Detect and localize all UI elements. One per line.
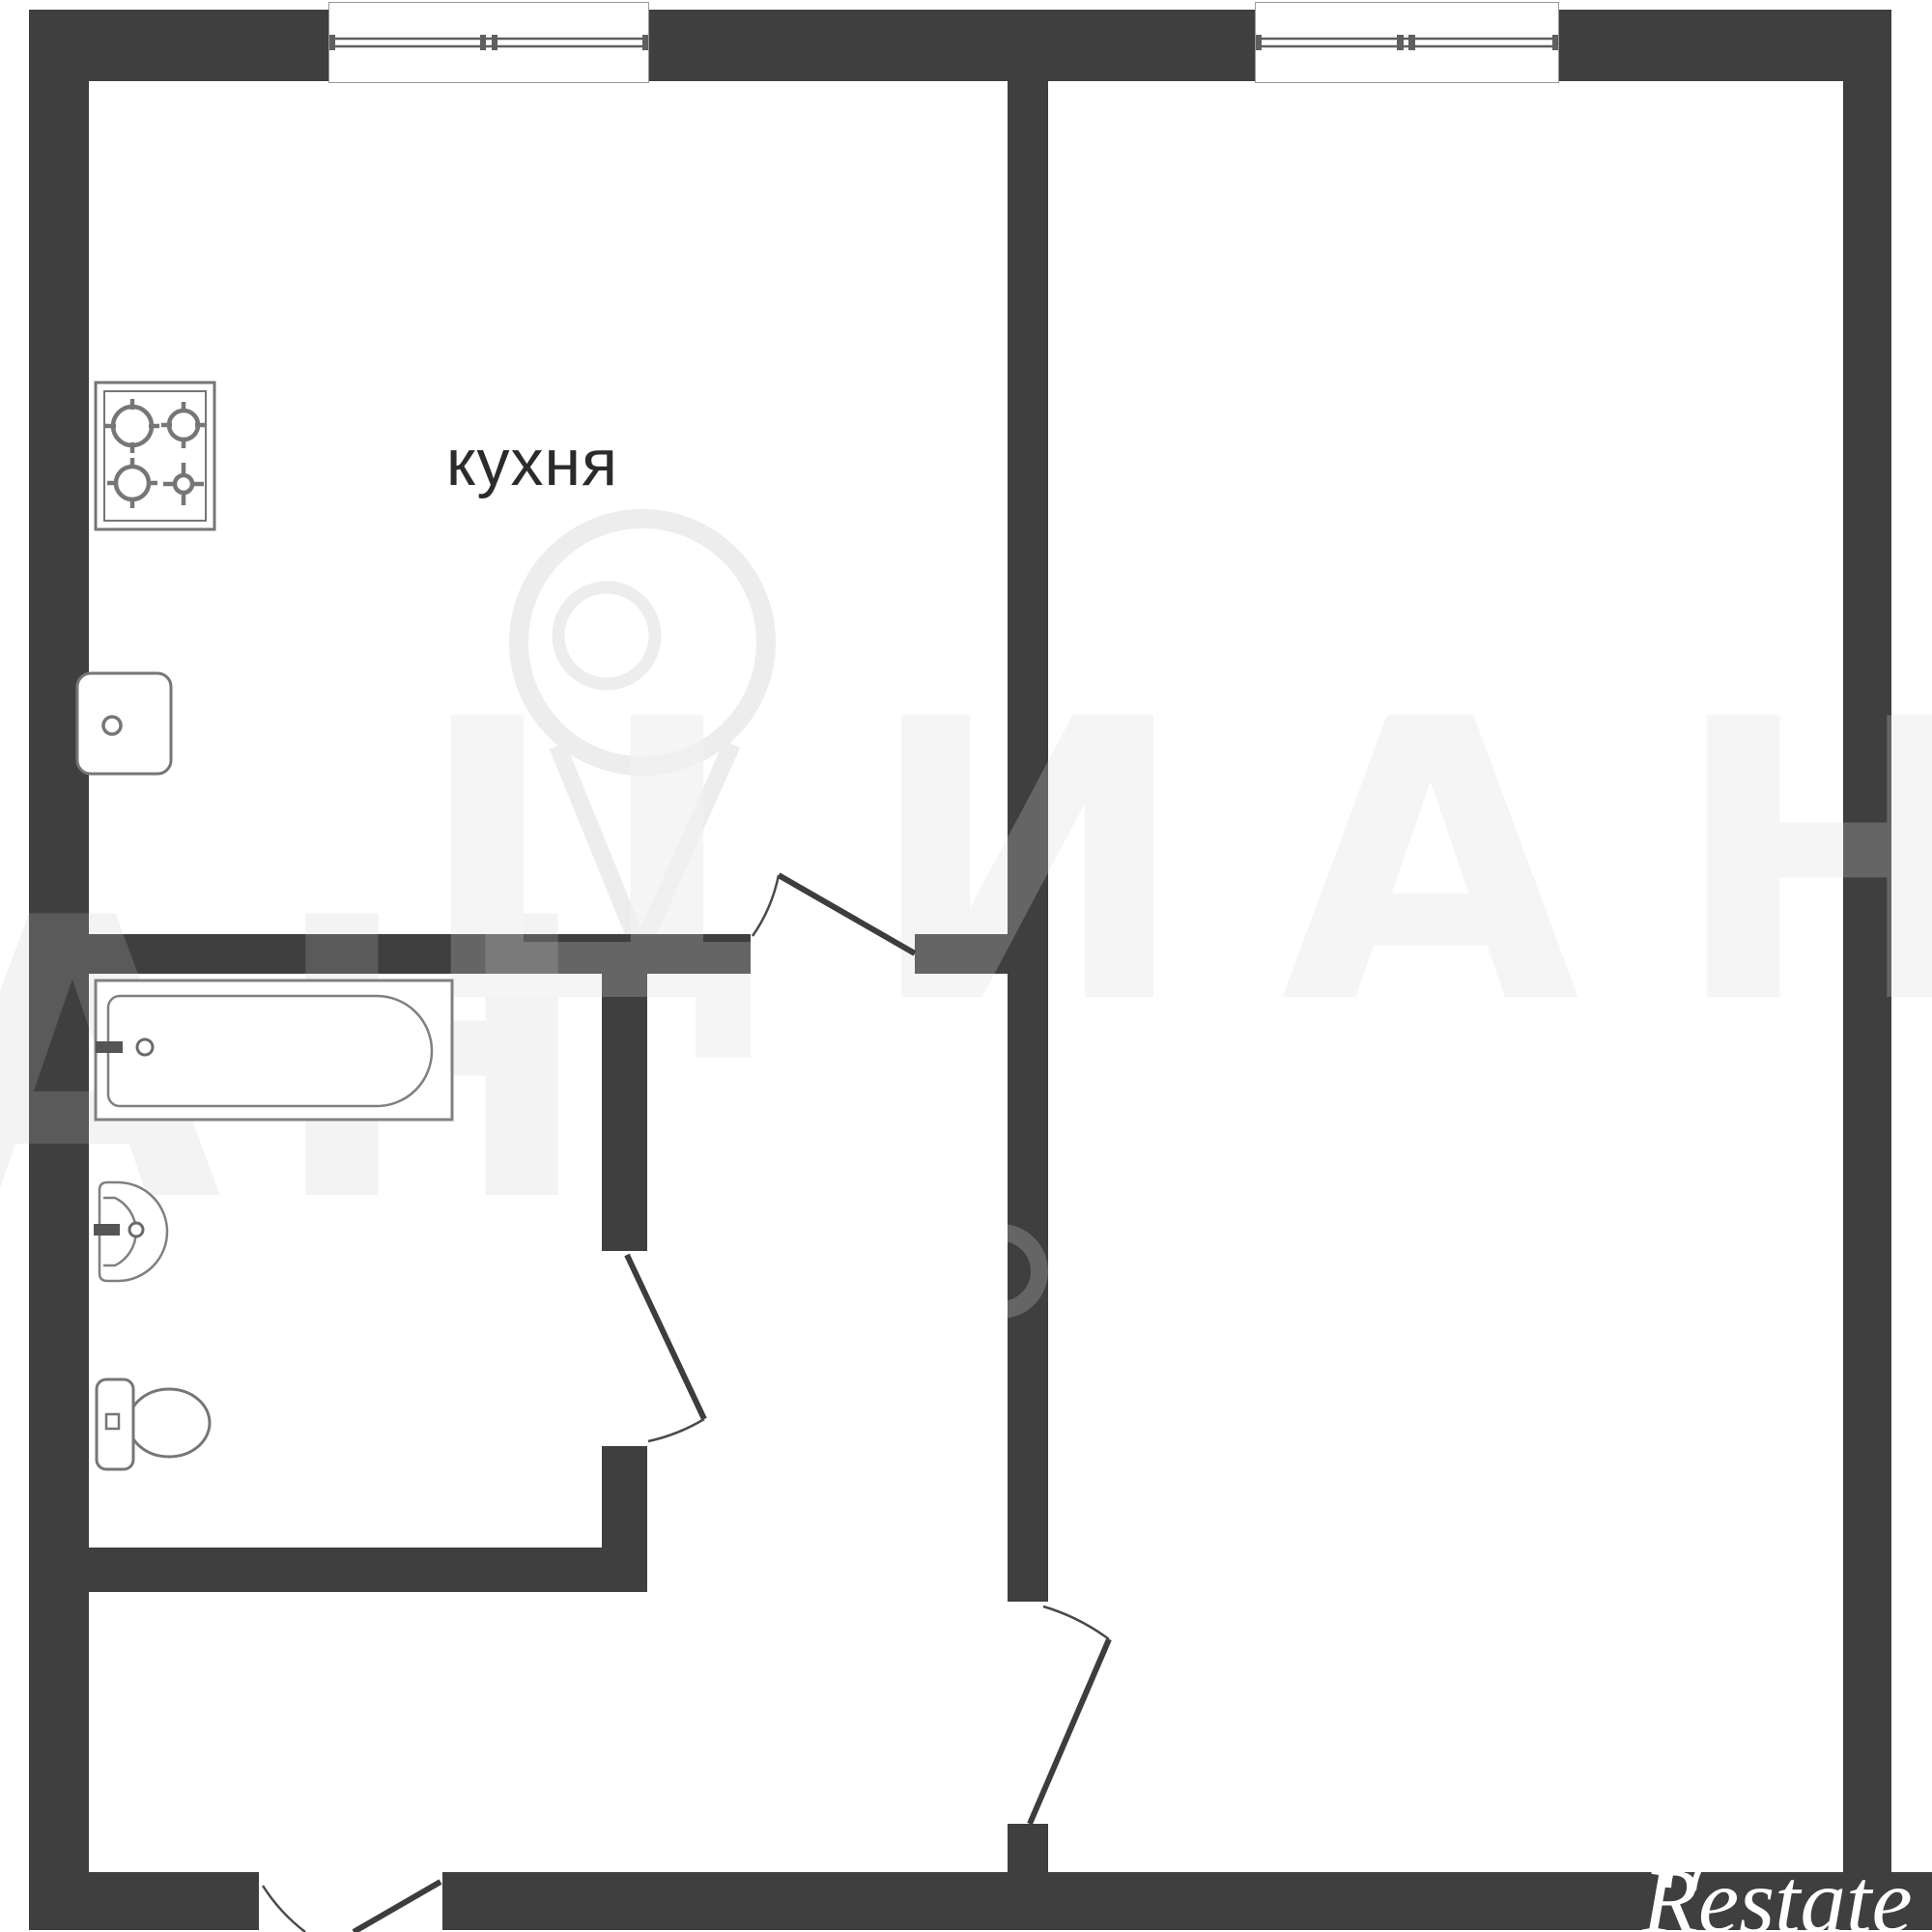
washbasin-icon	[94, 1182, 167, 1281]
toilet-icon	[97, 1379, 210, 1469]
room-label-kitchen: кухня	[446, 425, 618, 500]
kitchen-sink-icon	[77, 673, 171, 774]
bathroom-door-icon	[627, 1255, 704, 1441]
kitchen-door-icon	[753, 875, 915, 953]
window-frame-room-icon	[1256, 35, 1558, 50]
window-frame-kitchen-icon	[329, 35, 648, 50]
stove-icon	[96, 383, 214, 529]
floorplan-canvas: ЦИАН АН ЦИАН АН	[0, 0, 1932, 1932]
bathtub-icon	[96, 980, 452, 1120]
watermark-arc-on-wall	[962, 1233, 1039, 1310]
room-door-icon	[1030, 1606, 1109, 1824]
plan-linework-layer	[0, 0, 1932, 1932]
entrance-door-icon	[263, 1882, 440, 1932]
restate-logo-text: Restate	[1642, 1848, 1913, 1932]
